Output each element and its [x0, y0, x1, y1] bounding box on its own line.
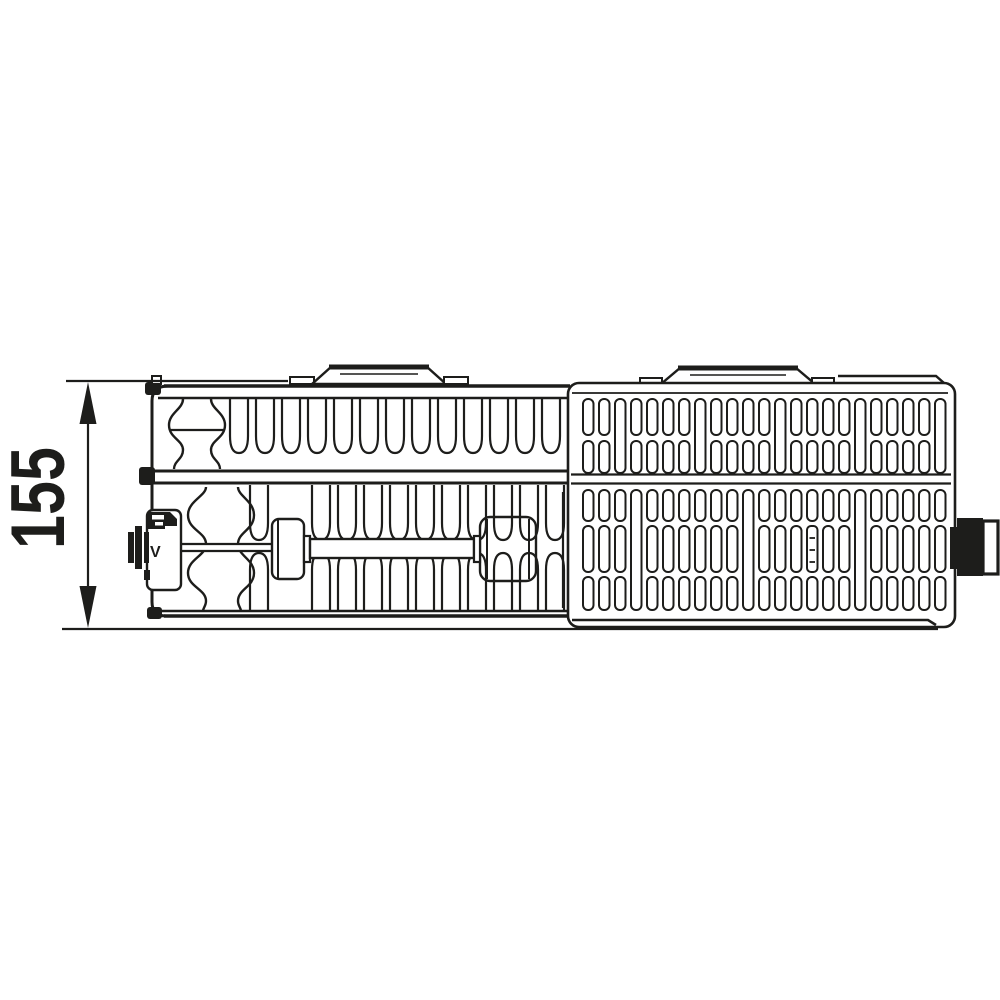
valve-body-hub — [480, 517, 536, 581]
convector-fin — [312, 553, 330, 611]
valve-nipple-cap — [128, 532, 134, 563]
grille-slot — [791, 526, 802, 572]
wall-brackets — [290, 367, 944, 384]
bracket-left-foot1 — [290, 377, 314, 384]
boss-cap — [983, 521, 998, 574]
grille-slot — [919, 490, 930, 521]
grille-slot — [807, 441, 818, 473]
grille-slot — [711, 577, 722, 610]
grille-slot — [695, 577, 706, 610]
grille-slot — [727, 490, 738, 521]
grille-slot — [711, 526, 722, 572]
grille-slot — [871, 490, 882, 521]
grille-section — [568, 383, 955, 627]
rod-flange-right — [474, 536, 480, 562]
grille-slot — [647, 526, 658, 572]
convector-fin — [282, 399, 300, 453]
grille-slot — [759, 577, 770, 610]
grille-slot — [919, 526, 930, 572]
convector-fin — [516, 399, 534, 453]
grille-slot — [775, 526, 786, 572]
bracket-left-body — [312, 367, 446, 384]
grille-slot — [903, 399, 914, 435]
grille-slot — [935, 577, 946, 610]
grille-slot — [663, 399, 674, 435]
grille-slot — [871, 577, 882, 610]
grille-slot — [727, 577, 738, 610]
grille-slot — [807, 490, 818, 521]
grille-slot — [599, 577, 610, 610]
hub-barrel — [272, 519, 304, 579]
valve-spindle-rod — [179, 544, 276, 551]
grille-slot — [839, 577, 850, 610]
grille-slot — [823, 441, 834, 473]
grille-slot — [615, 526, 626, 572]
grille-slot — [631, 441, 642, 473]
bracket-left — [290, 367, 468, 384]
grille-slot — [919, 399, 930, 435]
grille-slot — [583, 490, 594, 521]
grille-slot — [935, 490, 946, 521]
grille-slot — [903, 490, 914, 521]
grille-slot — [855, 490, 866, 610]
convector-fin — [360, 399, 378, 453]
grille-slot — [647, 399, 658, 435]
grille-slot — [887, 441, 898, 473]
grille-slot — [711, 441, 722, 473]
valve-nipple-body — [135, 526, 142, 569]
grille-slot — [791, 490, 802, 521]
convector-fin — [416, 485, 434, 540]
convector-fin — [338, 485, 356, 540]
grille-slot — [727, 441, 738, 473]
grille-slot — [599, 526, 610, 572]
convector-fin — [442, 485, 460, 540]
grille-slot — [647, 441, 658, 473]
convector-fin — [312, 485, 330, 540]
grille-slot — [663, 577, 674, 610]
convector-fin — [390, 553, 408, 611]
grille-slot — [711, 399, 722, 435]
grille-slot — [759, 399, 770, 435]
convector-fin — [438, 399, 456, 453]
grille-slot — [823, 399, 834, 435]
grille-slot — [631, 490, 642, 610]
grille-slot — [791, 577, 802, 610]
grille-slot — [839, 526, 850, 572]
grille-slot — [823, 577, 834, 610]
grille-slot — [903, 526, 914, 572]
dimension-label: 155 — [0, 447, 81, 549]
grille-slot — [871, 526, 882, 572]
grille-slot — [759, 490, 770, 521]
grille-slot — [679, 399, 690, 435]
radiator-technical-drawing: V — [0, 0, 1000, 1000]
convector-fin — [546, 553, 564, 611]
convector-fin — [542, 399, 560, 453]
grille-slot — [599, 490, 610, 521]
boss-body — [957, 518, 983, 576]
grille-slot — [583, 577, 594, 610]
grille-slot — [615, 577, 626, 610]
grille-slot — [727, 526, 738, 572]
grille-slot — [887, 490, 898, 521]
bracket-right — [640, 368, 834, 384]
convector-fin — [334, 399, 352, 453]
grille-slot — [583, 441, 594, 473]
grille-slot — [903, 441, 914, 473]
convector-fin — [250, 553, 268, 611]
grille-vent-ladder — [807, 526, 818, 572]
grille-slot — [711, 490, 722, 521]
grille-slot — [679, 526, 690, 572]
grille-slot — [679, 490, 690, 521]
distribution-assembly — [272, 519, 480, 579]
grille-slot — [663, 441, 674, 473]
grille-slot — [807, 399, 818, 435]
distribution-rod — [310, 539, 474, 558]
grille-slot — [887, 526, 898, 572]
grille-slot — [871, 399, 882, 435]
bracket-left-foot2 — [444, 377, 468, 384]
grille-slot — [775, 399, 786, 473]
grille-slot — [599, 441, 610, 473]
grille-slot — [887, 577, 898, 610]
connection-boss — [950, 518, 998, 576]
convector-fin — [386, 399, 404, 453]
convector-fin — [412, 399, 430, 453]
grille-slot — [759, 526, 770, 572]
convector-fin — [364, 485, 382, 540]
grille-slot — [727, 399, 738, 435]
convector-fin — [442, 553, 460, 611]
grille-slot — [791, 399, 802, 435]
grille-slot — [919, 441, 930, 473]
valve-clamp-slit1 — [152, 515, 164, 520]
convector-fin — [308, 399, 326, 453]
convector-fin — [256, 399, 274, 453]
grille-slot — [679, 577, 690, 610]
grille-slot — [695, 399, 706, 473]
grille-slot — [823, 526, 834, 572]
grille-slot — [599, 399, 610, 435]
grille-slot — [631, 399, 642, 435]
grille-slot — [679, 441, 690, 473]
grille-slot — [855, 399, 866, 473]
grille-slot — [743, 399, 754, 435]
grille-slot — [647, 490, 658, 521]
convector-fin — [230, 399, 248, 453]
convector-fin — [390, 485, 408, 540]
weld-blob-bottom-left — [147, 607, 162, 619]
grille-slot — [615, 490, 626, 521]
convector-fin — [364, 553, 382, 611]
valve-lower-tab — [144, 570, 150, 580]
convector-fin — [546, 485, 564, 540]
valve-direction-mark: V — [150, 544, 161, 561]
convector-fin — [490, 399, 508, 453]
grille-slot — [583, 526, 594, 572]
panel-section: V — [128, 376, 570, 619]
grille-slot — [839, 441, 850, 473]
grille-slot — [791, 441, 802, 473]
grille-slot — [743, 441, 754, 473]
grille-slot — [935, 526, 946, 572]
grille-slot — [695, 526, 706, 572]
grille-slot — [903, 577, 914, 610]
grille-slot — [695, 490, 706, 521]
grille-slot — [743, 490, 754, 610]
grille-slot — [663, 490, 674, 521]
grille-slot — [839, 490, 850, 521]
grille-slot — [583, 399, 594, 435]
grille-slot — [775, 490, 786, 521]
arrow-down-icon — [80, 586, 97, 628]
drawing-canvas: V — [0, 0, 1000, 1000]
grille-slots — [583, 399, 946, 610]
valve-clamp-slit2 — [155, 522, 163, 526]
weld-blob-separator-left — [139, 467, 155, 485]
valve-nipple-collar — [144, 532, 149, 563]
grille-slot — [919, 577, 930, 610]
convector-fin — [338, 553, 356, 611]
arrow-up-icon — [80, 382, 97, 424]
grille-slot — [887, 399, 898, 435]
grille-slot — [759, 441, 770, 473]
grille-slot — [663, 526, 674, 572]
valve-insert: V — [128, 510, 181, 590]
grille-slot — [647, 577, 658, 610]
grille-slot — [935, 399, 946, 473]
grille-slot — [839, 399, 850, 435]
water-channel-row1 — [169, 399, 225, 469]
grille-slot — [871, 441, 882, 473]
boss-step — [950, 527, 957, 569]
grille-slot — [615, 399, 626, 473]
grille-slot — [807, 577, 818, 610]
convector-fin — [416, 553, 434, 611]
convector-fin — [464, 399, 482, 453]
grille-slot — [823, 490, 834, 521]
grille-slot — [775, 577, 786, 610]
